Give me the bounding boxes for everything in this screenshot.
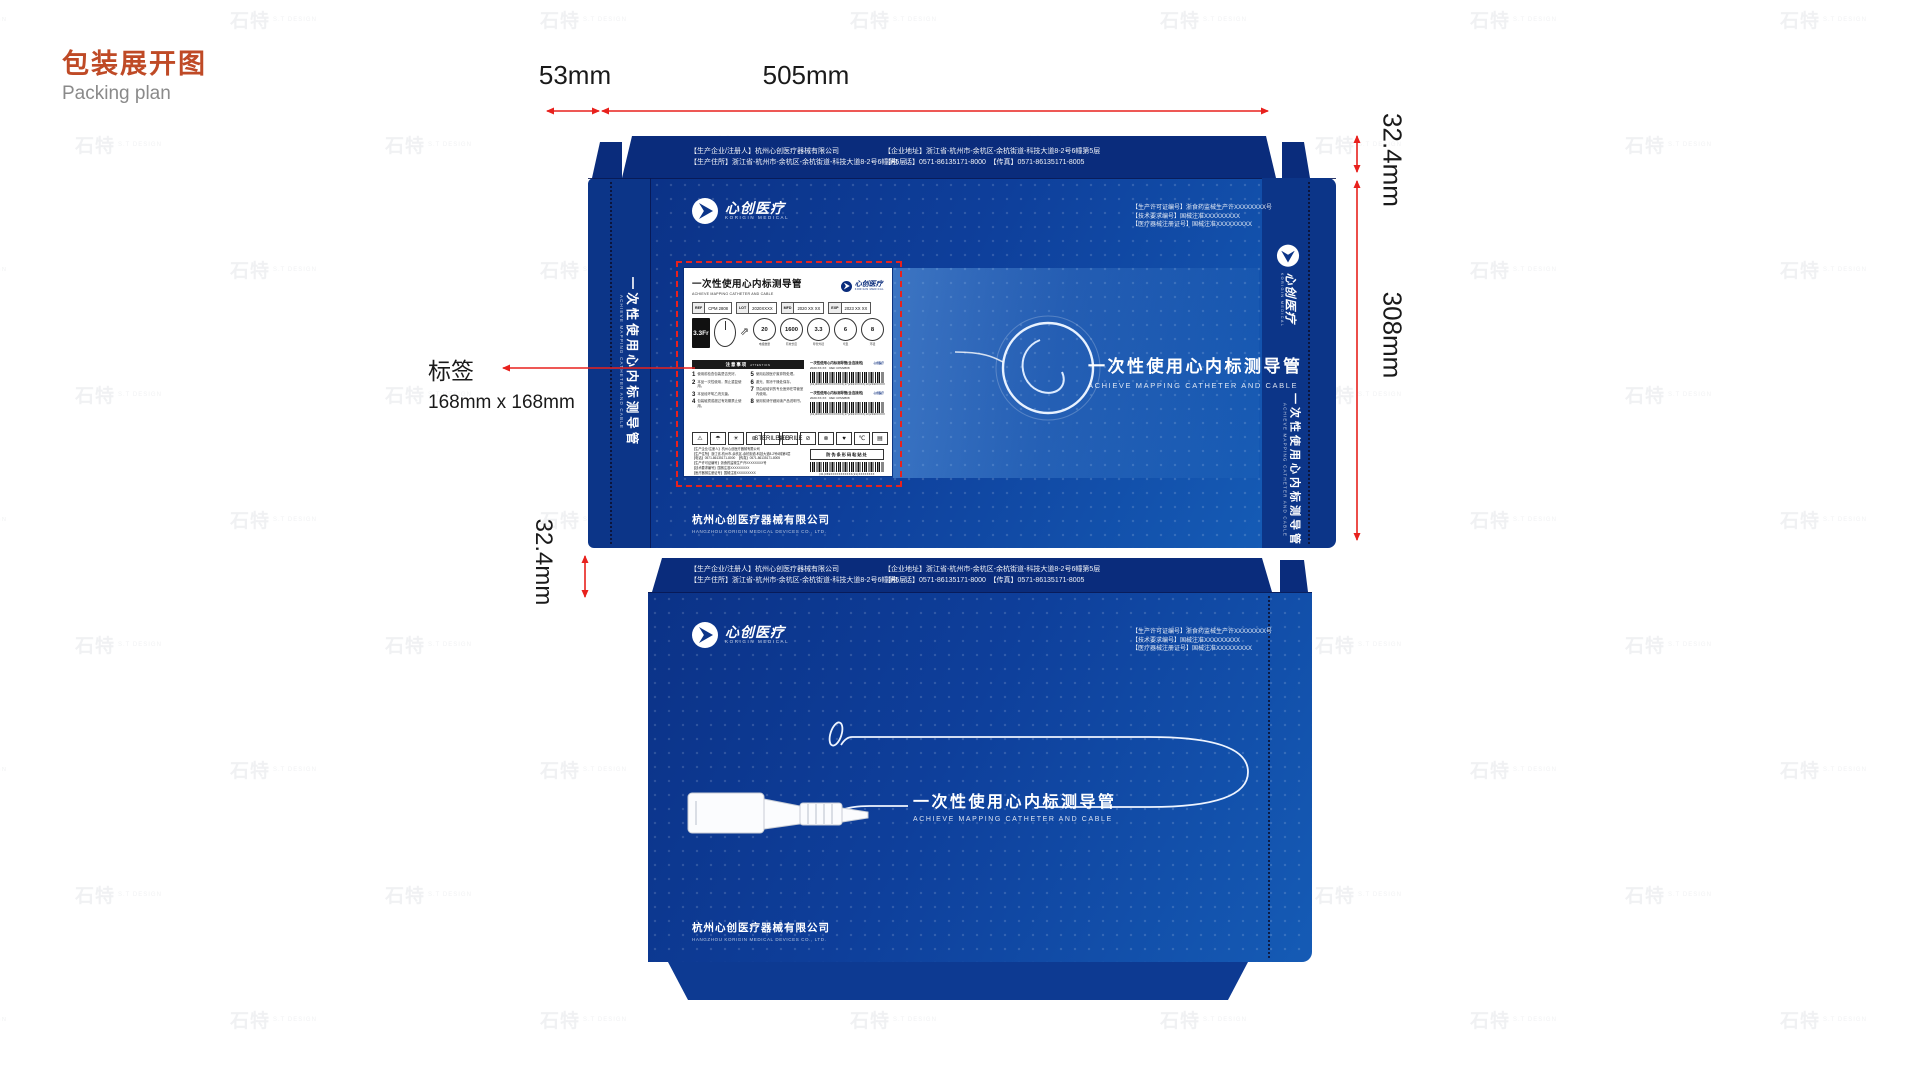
label-ref-lot-row: REFCPM 2808LOT2020XXXXMFD2020 XX XXEXP20… xyxy=(692,302,884,314)
top-face-company: 杭州心创医疗器械有限公司 HANGZHOU KORIGIN MEDICAL DE… xyxy=(692,512,830,534)
barcode-block: 一次性使用心内标测导管(含连接线)心创医疗 2020.XX.XX REF CPM… xyxy=(810,390,884,416)
fold-line-bottom-top xyxy=(648,592,1312,593)
attention-item: 3本品经环氧乙烷灭菌。 xyxy=(692,392,746,396)
fold-line-left-dotted xyxy=(610,182,612,544)
top-face-brand-logo: 心创医疗KORIGIN MEDICAL xyxy=(692,198,789,224)
watermark: 石特S.T DESIGN xyxy=(75,381,162,408)
ifu-symbol: ♥ xyxy=(836,432,852,445)
attention-item: 1使用前检查包装是否完好。 xyxy=(692,372,746,376)
spec-circles: 20 电极数量 1600 有效长度 3.3 导管外径 6 xyxy=(753,318,884,346)
label-symbol-row: ⚠☂☀⊛STERILE|EOSTERILE⊘⊗♥℃▤ xyxy=(692,432,884,445)
top-face-product-title: 一次性使用心内标测导管 ACHIEVE MAPPING CATHETER AND… xyxy=(1088,352,1303,390)
french-size-box: 3.3Fr xyxy=(692,318,710,348)
attention-item: 2本品一次性使用，禁止重复使用。 xyxy=(692,380,746,388)
watermark: 石特S.T DESIGN xyxy=(1625,131,1712,158)
watermark: 石特S.T DESIGN xyxy=(1470,756,1557,783)
watermark: 石特S.T DESIGN xyxy=(1470,1006,1557,1033)
left-panel-vertical-product-name: 一次性使用心内标测导管 ACHIEVE MAPPING CATHETER AND… xyxy=(619,277,643,448)
barcode xyxy=(810,402,884,413)
watermark: 石特S.T DESIGN xyxy=(385,131,472,158)
watermark: 石特S.T DESIGN xyxy=(1625,631,1712,658)
bottom-face-company: 杭州心创医疗器械有限公司 HANGZHOU KORIGIN MEDICAL DE… xyxy=(692,920,830,942)
brand-icon xyxy=(692,622,718,648)
watermark: 石特S.T DESIGN xyxy=(850,1006,937,1033)
watermark: 石特S.T DESIGN xyxy=(230,6,317,33)
watermark: 石特S.T DESIGN xyxy=(230,256,317,283)
ifu-symbol: ⊘ xyxy=(800,432,816,445)
bottom-box-bottom-flap xyxy=(668,962,1248,1000)
spec-circle: 3.3 导管外径 xyxy=(807,318,830,346)
ifu-symbol: ▤ xyxy=(872,432,888,445)
catheter-illustration xyxy=(680,700,1280,850)
attention-item: 4包装破损或超过有效期禁止使用。 xyxy=(692,399,746,407)
watermark: 石特S.T DESIGN xyxy=(1780,256,1867,283)
label-chip: EXP2023 XX XX xyxy=(828,302,871,314)
bottom-face-license-block: 【生产许可证编号】浙食药监械生产许XXXXXXXX号【技术要求编号】国械注准XX… xyxy=(1132,628,1272,654)
right-panel-vertical-product-name: 一次性使用心内标测导管 ACHIEVE MAPPING CATHETER AND… xyxy=(1283,393,1304,547)
barcode-block: 一次性使用心内标测导管(含连接线)心创医疗 2020.XX.XX REF CPM… xyxy=(810,360,884,386)
watermark: 石特S.T DESIGN xyxy=(540,1006,627,1033)
watermark: 石特S.T DESIGN xyxy=(385,631,472,658)
label-chip: MFD2020 XX XX xyxy=(781,302,825,314)
page-title: 包装展开图 xyxy=(62,42,207,81)
gauge-dial-icon xyxy=(714,318,736,347)
label-udi-area: 防伪条形码粘贴处 (01)069XXXXXXXXXXX(21)XXXXXXXX xyxy=(810,449,884,476)
watermark: 石特S.T DESIGN xyxy=(1470,256,1557,283)
watermark: 石特S.T DESIGN xyxy=(1160,1006,1247,1033)
watermark: 石特S.T DESIGN xyxy=(385,881,472,908)
spec-circle: 20 电极数量 xyxy=(753,318,776,346)
bottom-flap-mfr-text: 【生产企业/注册人】杭州心创医疗器械有限公司【生产住所】浙江省-杭州市-余杭区-… xyxy=(690,564,906,586)
watermark: 石特S.T DESIGN xyxy=(1315,631,1402,658)
watermark: 石特S.T DESIGN xyxy=(0,506,7,533)
top-face-license-block: 【生产许可证编号】浙食药监械生产许XXXXXXXX号【技术要求编号】国械注准XX… xyxy=(1132,204,1272,230)
spec-circle: 8 环径 xyxy=(861,318,884,346)
label-size-note: 168mm x 168mm xyxy=(428,392,575,414)
watermark: 石特S.T DESIGN xyxy=(0,1006,7,1033)
brand-icon xyxy=(841,281,852,292)
watermark: 石特S.T DESIGN xyxy=(1470,6,1557,33)
watermark: 石特S.T DESIGN xyxy=(230,756,317,783)
ifu-symbol: ⊗ xyxy=(818,432,834,445)
dim-53mm: 53mm xyxy=(510,60,640,91)
electrode-arrow-icon: ⇗ xyxy=(740,318,749,346)
watermark: 石特S.T DESIGN xyxy=(540,6,627,33)
dim-32mm-left: 32.4mm xyxy=(529,519,557,606)
ifu-symbol: ☂ xyxy=(710,432,726,445)
bottom-face-brand-logo: 心创医疗KORIGIN MEDICAL xyxy=(692,622,789,648)
label-brand-logo: 心创医疗KORIGIN MEDICAL xyxy=(841,276,884,296)
watermark: 石特S.T DESIGN xyxy=(75,131,162,158)
bottom-box-top-flap-tab-right xyxy=(1280,560,1308,592)
watermark: 石特S.T DESIGN xyxy=(0,256,7,283)
attention-item: 6避光、阴凉干燥处保存。 xyxy=(751,380,805,384)
dim-32mm-right: 32.4mm xyxy=(1377,113,1408,207)
brand-icon xyxy=(1277,245,1299,267)
ifu-symbol: ℃ xyxy=(854,432,870,445)
label-callout: 标签 xyxy=(428,352,474,386)
spec-circle: 6 弯型 xyxy=(834,318,857,346)
attention-item: 8使用前请仔细阅读产品说明书。 xyxy=(751,399,805,403)
watermark: 石特S.T DESIGN xyxy=(540,756,627,783)
watermark: 石特S.T DESIGN xyxy=(0,756,7,783)
bottom-flap-addr-text: 【企业地址】浙江省-杭州市-余杭区-余杭街道-科技大道8-2号6幢第5层【电 话… xyxy=(884,564,1100,586)
watermark: 石特S.T DESIGN xyxy=(1160,6,1247,33)
right-panel-vertical-logo: 心创医疗KORIGIN MEDICAL xyxy=(1275,237,1301,334)
attention-item: 7须由经培训的专业医师在导管室内使用。 xyxy=(751,387,805,395)
watermark: 石特S.T DESIGN xyxy=(1780,756,1867,783)
dim-308mm: 308mm xyxy=(1377,292,1408,379)
label-spec-row: 3.3Fr ⇗ 20 电极数量 1600 有效长度 3.3 xyxy=(692,318,884,348)
label-attention: 注意事项ATTENTION 1使用前检查包装是否完好。 2本品一次性使用，禁止重… xyxy=(692,360,804,409)
label-header: 一次性使用心内标测导管 ACHIEVE MAPPING CATHETER AND… xyxy=(692,276,884,296)
label-chip: REFCPM 2808 xyxy=(692,302,732,314)
watermark: 石特S.T DESIGN xyxy=(75,631,162,658)
watermark: 石特S.T DESIGN xyxy=(850,6,937,33)
label-barcode-column: 一次性使用心内标测导管(含连接线)心创医疗 2020.XX.XX REF CPM… xyxy=(810,360,884,420)
top-flap-mfr-text: 【生产企业/注册人】杭州心创医疗器械有限公司【生产住所】浙江省-杭州市-余杭区-… xyxy=(690,146,906,168)
watermark: 石特S.T DESIGN xyxy=(75,881,162,908)
watermark: 石特S.T DESIGN xyxy=(1315,881,1402,908)
watermark: 石特S.T DESIGN xyxy=(1780,6,1867,33)
top-box-glue-flap-left xyxy=(588,178,611,548)
dim-505mm: 505mm xyxy=(741,60,871,91)
watermark: 石特S.T DESIGN xyxy=(0,6,7,33)
label-chip: LOT2020XXXX xyxy=(736,302,777,314)
bottom-face-product-title: 一次性使用心内标测导管 ACHIEVE MAPPING CATHETER AND… xyxy=(913,788,1117,823)
brand-icon xyxy=(692,198,718,224)
attention-item: 5使用后按医疗废弃物处理。 xyxy=(751,372,805,376)
watermark: 石特S.T DESIGN xyxy=(1780,1006,1867,1033)
ifu-symbol: ⚠ xyxy=(692,432,708,445)
watermark: 石特S.T DESIGN xyxy=(1625,381,1712,408)
watermark: 石特S.T DESIGN xyxy=(230,1006,317,1033)
top-flap-addr-text: 【企业地址】浙江省-杭州市-余杭区-余杭街道-科技大道8-2号6幢第5层【电 话… xyxy=(884,146,1100,168)
fold-line-face-left xyxy=(650,178,651,548)
spec-circle: 1600 有效长度 xyxy=(780,318,803,346)
watermark: 石特S.T DESIGN xyxy=(230,506,317,533)
fold-line-top xyxy=(588,178,1336,179)
barcode xyxy=(810,372,884,383)
title-block: 包装展开图 Packing plan xyxy=(62,42,207,105)
watermark: 石特S.T DESIGN xyxy=(1470,506,1557,533)
fold-line-right-dotted xyxy=(1308,182,1310,544)
watermark: 石特S.T DESIGN xyxy=(1780,506,1867,533)
ifu-symbol: ☀ xyxy=(728,432,744,445)
label-footer-lines: 【生产企业/注册人】杭州心创医疗器械有限公司【生产住所】浙江省-杭州市-余杭区-… xyxy=(692,447,804,475)
product-label: 一次性使用心内标测导管 ACHIEVE MAPPING CATHETER AND… xyxy=(684,268,892,476)
packing-plan-canvas: 石特S.T DESIGN石特S.T DESIGN石特S.T DESIGN石特S.… xyxy=(0,0,1920,1080)
page-subtitle: Packing plan xyxy=(62,83,207,105)
ifu-symbol: STERILE xyxy=(782,432,798,445)
watermark: 石特S.T DESIGN xyxy=(1625,881,1712,908)
udi-barcode xyxy=(810,462,884,472)
